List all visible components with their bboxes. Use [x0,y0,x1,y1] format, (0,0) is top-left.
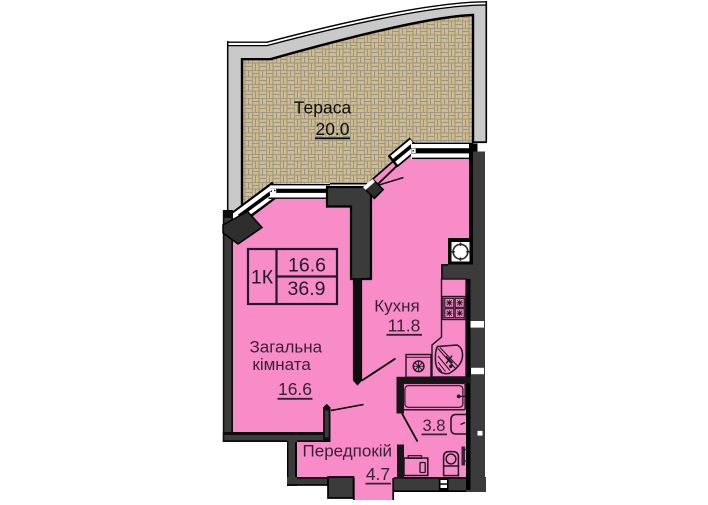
svg-text:кімната: кімната [252,355,311,374]
svg-text:4.7: 4.7 [366,464,390,484]
svg-text:Загальна: Загальна [249,337,322,356]
svg-text:Тераса: Тераса [294,98,352,118]
svg-text:36.9: 36.9 [288,278,326,300]
svg-text:11.8: 11.8 [388,316,421,336]
svg-text:16.6: 16.6 [288,255,326,277]
svg-text:3.8: 3.8 [423,417,446,435]
svg-text:20.0: 20.0 [315,119,349,139]
svg-text:Кухня: Кухня [374,297,420,316]
svg-text:16.6: 16.6 [278,379,312,399]
svg-text:1К: 1К [251,267,274,289]
svg-text:Передпокій: Передпокій [303,442,393,461]
